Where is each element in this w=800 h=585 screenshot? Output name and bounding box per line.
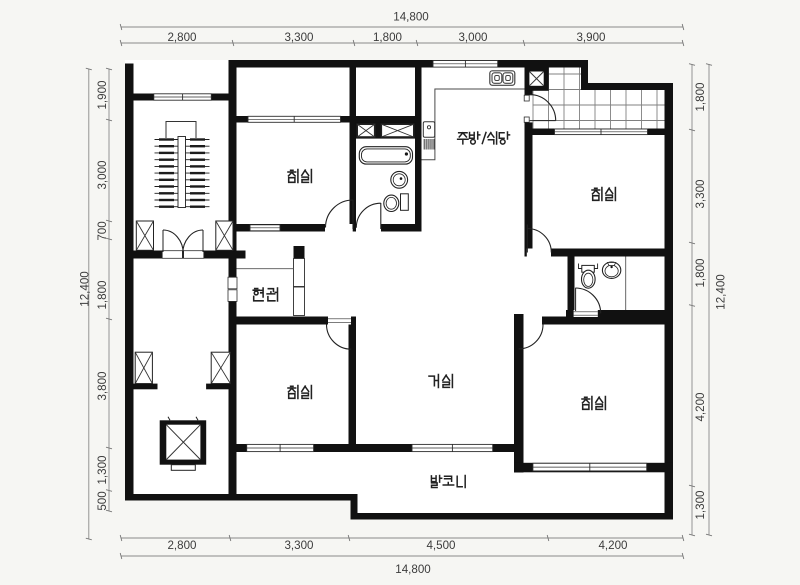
svg-text:1,800: 1,800 [96, 280, 109, 309]
svg-text:12,400: 12,400 [715, 274, 728, 309]
svg-text:12,400: 12,400 [78, 271, 91, 306]
svg-text:3,300: 3,300 [694, 179, 707, 208]
svg-text:4,500: 4,500 [426, 539, 455, 552]
svg-text:14,800: 14,800 [393, 11, 428, 24]
svg-text:3,300: 3,300 [284, 539, 313, 552]
svg-text:2,800: 2,800 [167, 31, 196, 44]
svg-text:3,300: 3,300 [284, 31, 313, 44]
svg-text:1,900: 1,900 [96, 80, 109, 109]
svg-text:14,800: 14,800 [395, 563, 430, 576]
svg-text:700: 700 [96, 221, 109, 240]
svg-text:3,000: 3,000 [96, 160, 109, 189]
svg-text:1,800: 1,800 [373, 31, 402, 44]
svg-text:3,000: 3,000 [458, 31, 487, 44]
svg-text:1,300: 1,300 [96, 455, 109, 484]
svg-text:1,800: 1,800 [694, 82, 707, 111]
svg-text:1,300: 1,300 [694, 490, 707, 519]
svg-text:4,200: 4,200 [694, 392, 707, 421]
svg-text:500: 500 [96, 491, 109, 510]
svg-text:3,900: 3,900 [576, 31, 605, 44]
svg-text:1,800: 1,800 [694, 258, 707, 287]
svg-text:3,800: 3,800 [96, 371, 109, 400]
svg-text:2,800: 2,800 [167, 539, 196, 552]
svg-text:4,200: 4,200 [598, 539, 627, 552]
